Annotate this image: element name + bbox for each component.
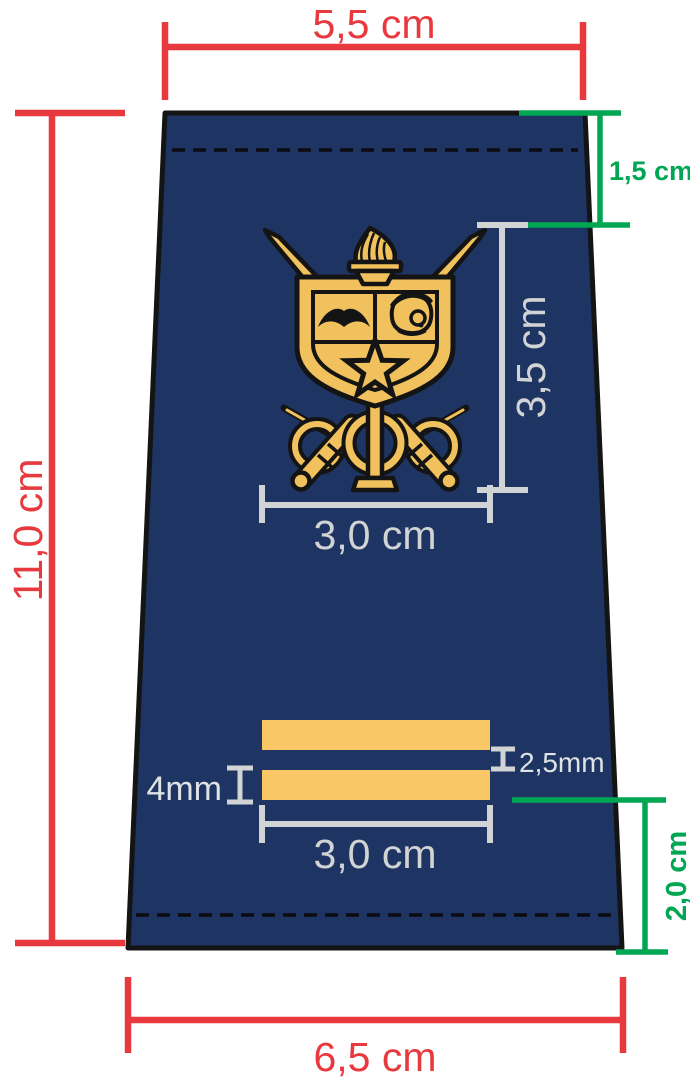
dimension-top-width: 5,5 cm [165, 1, 583, 100]
top-fold-label: 1,5 cm [609, 156, 690, 186]
crest-height-label: 3,5 cm [508, 295, 554, 418]
crest-width-label: 3,0 cm [313, 512, 436, 558]
dimension-bottom-width: 6,5 cm [128, 977, 623, 1080]
epaulette-spec-diagram: 5,5 cm 11,0 cm 6,5 cm 1,5 cm 2,0 cm 3,5 … [0, 0, 690, 1080]
top-width-label: 5,5 cm [312, 1, 435, 47]
dimension-total-height: 11,0 cm [5, 113, 125, 943]
stripe-width-label: 3,0 cm [313, 831, 436, 877]
total-height-label: 11,0 cm [5, 459, 51, 602]
academy-crest-icon [265, 228, 485, 490]
bottom-width-label: 6,5 cm [313, 1034, 436, 1080]
stripe-thickness-label: 4mm [146, 770, 222, 808]
stripe-gap-label: 2,5mm [519, 747, 605, 778]
rank-stripe-top [262, 720, 490, 750]
bottom-offset-label: 2,0 cm [661, 831, 690, 921]
rank-stripe-bottom [262, 770, 490, 800]
diagram-canvas: 5,5 cm 11,0 cm 6,5 cm 1,5 cm 2,0 cm 3,5 … [0, 0, 690, 1080]
helmet-icon [390, 292, 433, 334]
